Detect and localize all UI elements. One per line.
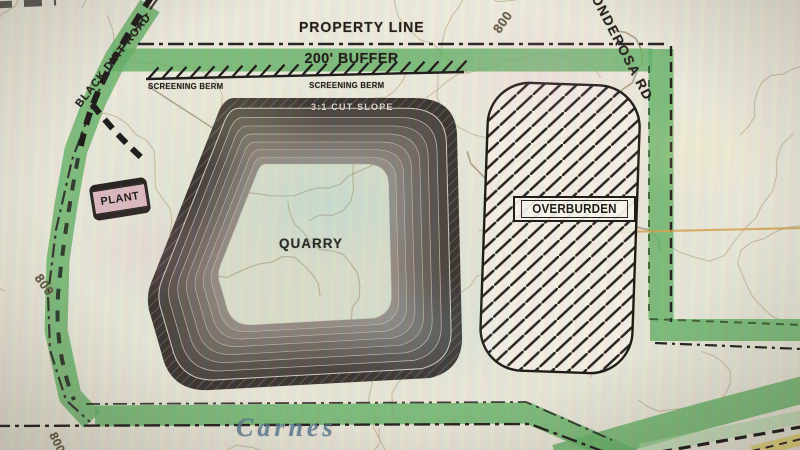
black-dirt-road-label: BLACK DIRT ROAD	[73, 11, 153, 109]
carnes-place-label: Carnes	[236, 413, 337, 443]
screening-berm-label-center: SCREENING BERM	[309, 81, 384, 90]
property-line-label: PROPERTY LINE	[299, 20, 425, 36]
cut-slope-label: 3:1 CUT SLOPE	[311, 102, 394, 112]
contour-800-label-bottom: 800	[46, 430, 68, 450]
plant-box: PLANT	[89, 177, 152, 222]
plant-label: PLANT	[91, 183, 148, 215]
map-scene: PROPERTY LINE 200' BUFFER SCREENING BERM…	[0, 0, 800, 450]
contour-800-label-left: 800	[32, 271, 58, 299]
quarry-label: QUARRY	[279, 236, 343, 251]
overburden-label: OVERBURDEN	[521, 200, 628, 218]
map-labels-layer: PROPERTY LINE 200' BUFFER SCREENING BERM…	[0, 0, 800, 450]
buffer-label: 200' BUFFER	[304, 50, 398, 67]
screening-berm-label-west: SCREENING BERM	[148, 82, 223, 91]
contour-800-label-top: 800	[490, 8, 516, 36]
ponderosa-rd-label: PONDEROSA RD	[584, 0, 656, 103]
overburden-box: OVERBURDEN	[513, 196, 636, 222]
quarry-site-plan-screenshot: PROPERTY LINE 200' BUFFER SCREENING BERM…	[0, 0, 800, 450]
